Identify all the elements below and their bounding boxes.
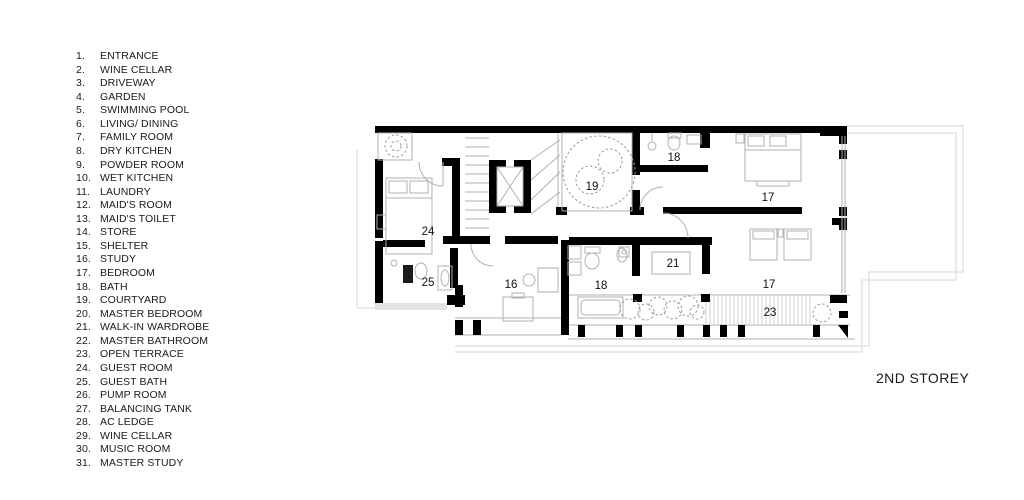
room-label-bath-upper: 18	[668, 152, 681, 164]
room-label-open-terrace: 23	[764, 307, 777, 319]
room-label-bedroom-upper: 17	[762, 192, 775, 204]
room-label-bedroom-lower: 17	[763, 279, 776, 291]
room-label-walk-in-wardrobe: 21	[667, 258, 680, 270]
elevator	[497, 167, 523, 206]
shower-fixture	[403, 265, 413, 283]
room-label-bath-lower: 18	[595, 280, 608, 292]
hatched-strip	[375, 303, 447, 310]
floor-plan-drawing: 19 18 17 24 25 16 18 21 17 23	[0, 0, 1024, 500]
terrace-deck-hatch	[706, 296, 810, 324]
room-label-courtyard: 19	[586, 181, 599, 193]
room-label-guest-bath: 25	[422, 277, 435, 289]
room-label-guest-room: 24	[422, 226, 435, 238]
storey-title: 2ND STOREY	[876, 370, 969, 386]
room-labels: 19 18 17 24 25 16 18 21 17 23	[422, 152, 777, 319]
courtyard-tree	[562, 133, 635, 211]
planter-tree	[378, 133, 412, 160]
floor-plan-sheet: 1. ENTRANCE 2. WINE CELLAR 3. DRIVEWAY 4…	[0, 0, 1024, 500]
room-label-study: 16	[505, 279, 518, 291]
